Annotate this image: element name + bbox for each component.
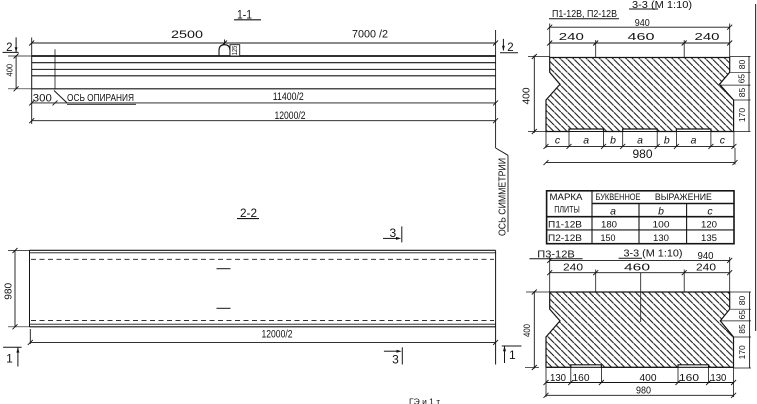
svg-text:400: 400 [522, 87, 533, 104]
svg-text:a: a [637, 135, 643, 147]
svg-text:240: 240 [695, 31, 720, 43]
svg-text:150: 150 [601, 233, 616, 244]
svg-text:170: 170 [737, 345, 747, 359]
svg-text:980: 980 [636, 384, 651, 396]
svg-text:МАРКА: МАРКА [550, 192, 584, 203]
svg-text:1: 1 [6, 351, 13, 365]
svg-text:400: 400 [522, 324, 533, 337]
svg-text:3: 3 [392, 352, 399, 366]
svg-text:П1-12В: П1-12В [548, 220, 582, 231]
svg-text:ОСЬ ОПИРАНИЯ: ОСЬ ОПИРАНИЯ [67, 93, 134, 104]
svg-text:130: 130 [653, 233, 669, 244]
svg-text:80: 80 [737, 296, 747, 306]
svg-text:ОСЬ СИММЕТРИИ: ОСЬ СИММЕТРИИ [498, 158, 509, 236]
svg-text:12000/2: 12000/2 [262, 329, 293, 341]
svg-text:ГЭ и 1 т: ГЭ и 1 т [409, 397, 440, 404]
svg-text:240: 240 [559, 31, 584, 43]
svg-text:300: 300 [33, 92, 52, 104]
svg-text:c: c [707, 205, 713, 217]
svg-text:980: 980 [4, 282, 15, 299]
svg-text:80: 80 [737, 60, 747, 70]
svg-text:2: 2 [507, 42, 513, 54]
svg-text:240: 240 [696, 261, 716, 273]
svg-text:120: 120 [701, 220, 717, 231]
svg-text:460: 460 [628, 31, 655, 43]
svg-text:170: 170 [737, 108, 747, 122]
svg-text:П2-12В: П2-12В [548, 233, 582, 244]
svg-text:a: a [583, 135, 589, 147]
svg-text:1: 1 [509, 348, 516, 362]
svg-text:85: 85 [737, 324, 747, 334]
svg-text:65: 65 [737, 310, 747, 320]
svg-text:1-1: 1-1 [237, 7, 252, 21]
svg-text:БУКВЕННОЕ: БУКВЕННОЕ [596, 192, 641, 203]
svg-text:3: 3 [389, 226, 396, 240]
svg-text:11400/2: 11400/2 [273, 91, 304, 103]
svg-text:240: 240 [563, 261, 583, 273]
svg-text:65: 65 [737, 74, 747, 84]
svg-text:b: b [610, 135, 616, 147]
svg-text:125: 125 [230, 46, 239, 56]
svg-text:100: 100 [653, 220, 670, 231]
svg-text:7000 /2: 7000 /2 [352, 28, 388, 40]
svg-text:400: 400 [5, 64, 15, 77]
svg-text:a: a [691, 135, 697, 147]
svg-text:980: 980 [633, 147, 653, 161]
svg-text:b: b [658, 205, 664, 217]
svg-text:2-2: 2-2 [240, 206, 257, 220]
svg-text:460: 460 [624, 261, 650, 273]
svg-text:c: c [720, 135, 726, 147]
svg-text:a: a [610, 205, 616, 217]
svg-text:П1-12В, П2-12В: П1-12В, П2-12В [552, 8, 617, 20]
svg-text:b: b [664, 135, 670, 147]
svg-text:c: c [555, 135, 561, 147]
svg-text:180: 180 [601, 220, 617, 231]
svg-text:ВЫРАЖЕНИЕ: ВЫРАЖЕНИЕ [655, 192, 712, 203]
svg-text:2500: 2500 [171, 29, 203, 41]
svg-text:135: 135 [701, 233, 717, 244]
svg-text:ПЛИТЫ: ПЛИТЫ [554, 204, 580, 215]
svg-text:85: 85 [737, 88, 747, 98]
svg-text:12000/2: 12000/2 [275, 110, 306, 122]
